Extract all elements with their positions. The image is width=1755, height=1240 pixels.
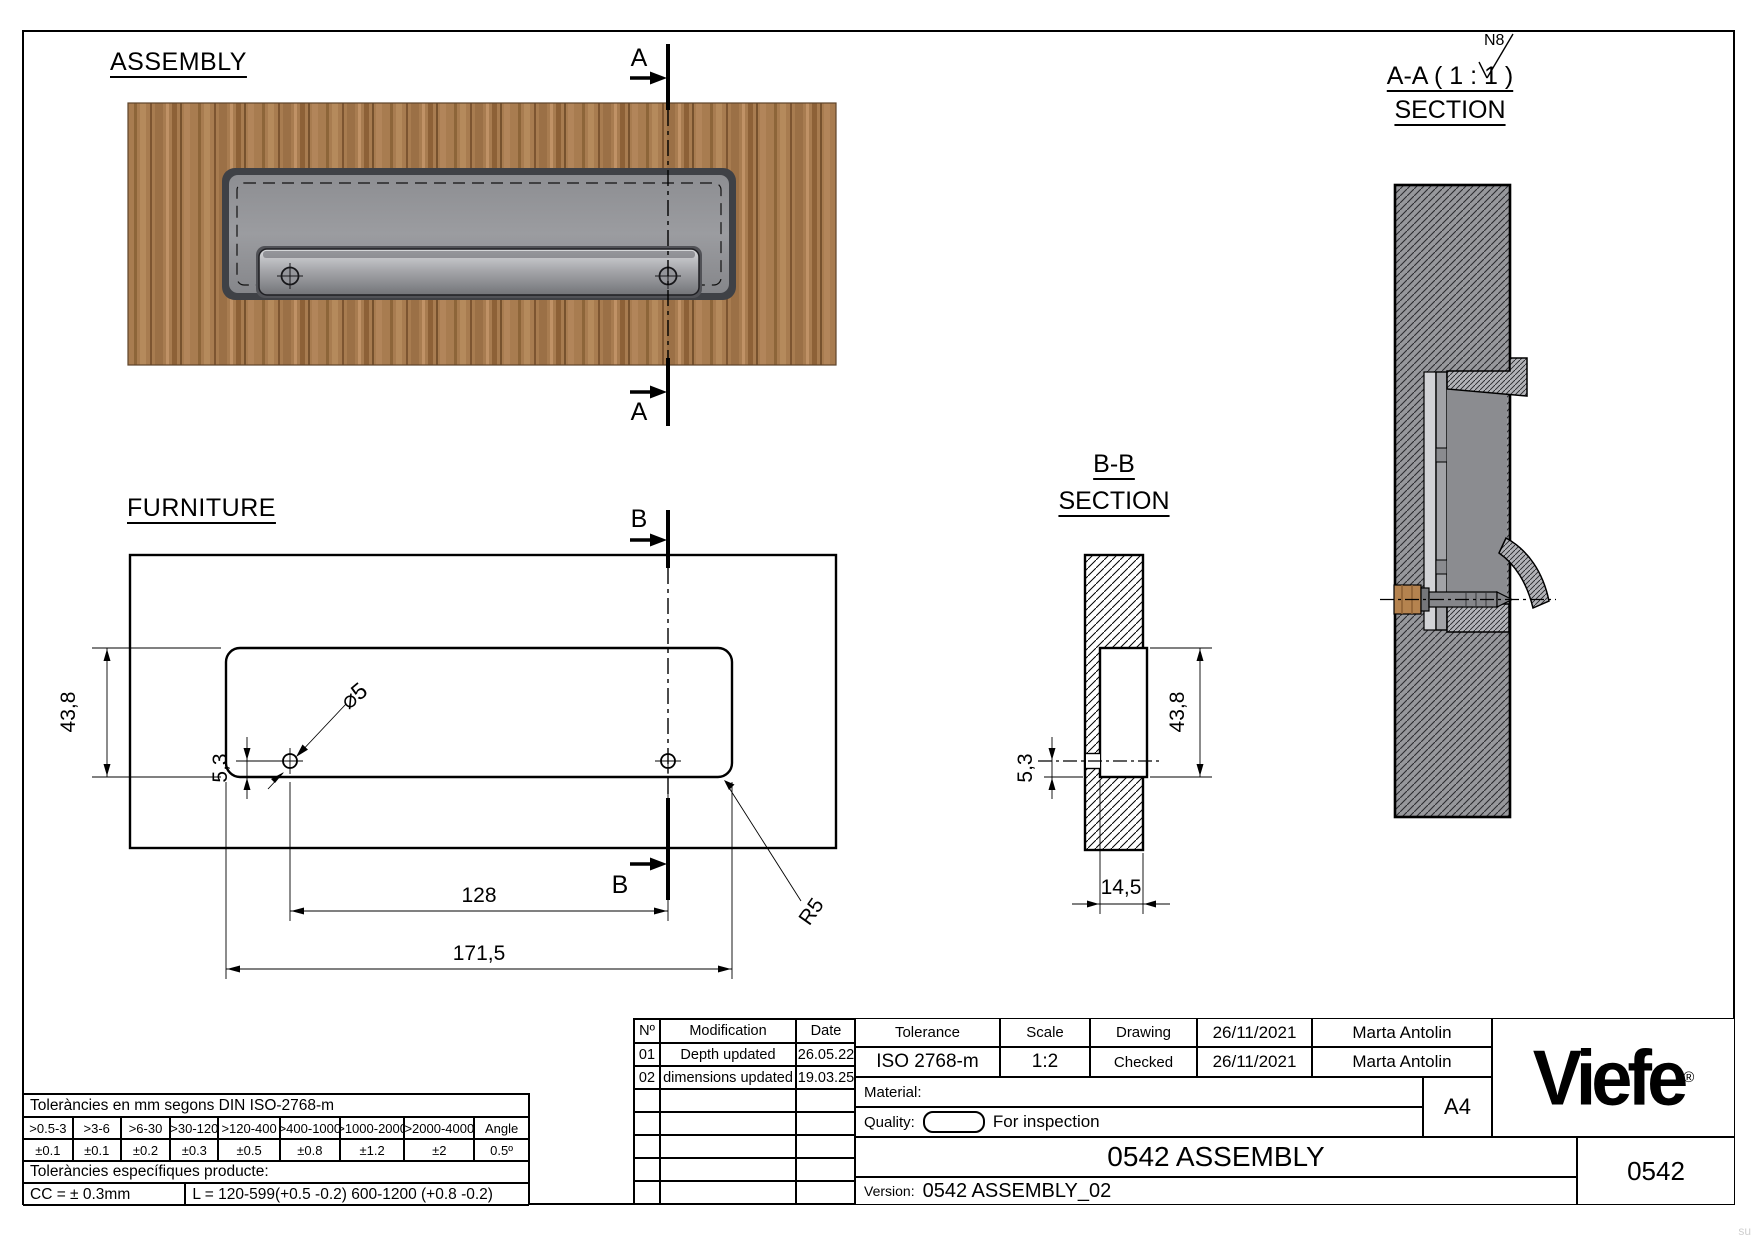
scale-value-cell: 1:2 [1000,1047,1090,1077]
mod-cell: 02 [634,1066,660,1089]
dim-section-offset: 5,3 [1014,753,1038,782]
quality-value: For inspection [993,1112,1100,1132]
tolerance-value: ±0.1 [23,1139,73,1161]
tolerance-value: ±0.3 [170,1139,218,1161]
assembly-view-drawing [128,44,836,426]
tolerance-value: ±0.2 [121,1139,171,1161]
section-aa-drawing [1380,185,1556,817]
checked-author-cell: Marta Antolin [1312,1047,1492,1077]
tolerance-range: >0.5-3 [23,1117,73,1139]
modification-table: Nº Modification Date 01 Depth updated 26… [633,1018,855,1205]
mod-cell [796,1158,856,1181]
section-marker-a-bottom: A [623,398,655,427]
tolerance-range: >400-1000 [280,1117,340,1139]
assembly-view-title: ASSEMBLY [110,48,247,77]
tolerance-value: ±0.1 [73,1139,121,1161]
mod-cell [660,1181,796,1204]
paper-size-cell: A4 [1423,1077,1492,1137]
section-aa-subtitle: SECTION [1340,96,1560,125]
drawing-date-cell: 26/11/2021 [1197,1018,1312,1047]
cc-tolerance-cell: CC = ± 0.3mm [23,1183,185,1206]
quality-label: Quality: [864,1114,915,1131]
mod-cell [796,1112,856,1135]
mod-cell [796,1135,856,1158]
mod-cell: 19.03.25 [796,1066,856,1089]
mod-col-header: Date [796,1019,856,1043]
tolerance-value-cell: ISO 2768-m [855,1047,1000,1077]
tolerance-table-title: Toleràncies en mm segons DIN ISO-2768-m [23,1094,529,1117]
general-tolerances-table: Toleràncies en mm segons DIN ISO-2768-m … [22,1093,530,1205]
mod-cell: 01 [634,1043,660,1066]
mod-cell: dimensions updated [660,1066,796,1089]
section-marker-a-top: A [623,44,655,73]
tolerance-value: ±0.8 [280,1139,340,1161]
viefe-logo: Viefe [1533,1033,1684,1122]
length-tolerance-cell: L = 120-599(+0.5 -0.2) 600-1200 (+0.8 -0… [185,1183,529,1206]
mod-cell [796,1181,856,1204]
checked-label-cell: Checked [1090,1047,1197,1077]
section-bb-title: B-B [1054,450,1174,479]
tolerance-range: >2000-4000 [404,1117,474,1139]
mod-cell: 26.05.22 [796,1043,856,1066]
logo-box: Viefe ® [1492,1018,1735,1137]
mod-cell [660,1135,796,1158]
dim-hole-spacing: 128 [461,884,496,908]
section-bb-drawing [1038,555,1212,914]
mod-cell [796,1089,856,1112]
version-row: Version: 0542 ASSEMBLY_02 [855,1177,1577,1205]
surface-finish-label: N8 [1484,32,1504,50]
mod-cell [634,1181,660,1204]
drawing-author-cell: Marta Antolin [1312,1018,1492,1047]
quality-stamp-icon [923,1111,985,1133]
specific-tolerance-title: Toleràncies específiques producte: [23,1161,529,1183]
furniture-view-drawing [92,510,836,979]
section-bb-subtitle: SECTION [1054,487,1174,516]
drawing-number-cell: 0542 [1577,1137,1735,1205]
mod-cell [634,1112,660,1135]
mod-cell: Depth updated [660,1043,796,1066]
registered-mark: ® [1683,1069,1694,1086]
mod-cell [634,1135,660,1158]
section-aa-title: A-A ( 1 : 1 ) [1340,62,1560,91]
tolerance-label-cell: Tolerance [855,1018,1000,1047]
drawing-sheet: ASSEMBLY FURNITURE A-A ( 1 : 1 ) SECTION… [0,0,1755,1240]
mod-col-header: Modification [660,1019,796,1043]
version-value: 0542 ASSEMBLY_02 [923,1180,1112,1203]
version-label: Version: [864,1183,915,1199]
tolerance-value: ±0.5 [218,1139,280,1161]
tolerance-range: >3-6 [73,1117,121,1139]
drawing-title-cell: 0542 ASSEMBLY [855,1137,1577,1177]
tolerance-range: >120-400 [218,1117,280,1139]
mod-cell [660,1158,796,1181]
tolerance-range: >30-120 [170,1117,218,1139]
checked-date-cell: 26/11/2021 [1197,1047,1312,1077]
mod-cell [634,1158,660,1181]
quality-row: Quality: For inspection [855,1107,1423,1137]
tolerance-value: ±2 [404,1139,474,1161]
drawing-label-cell: Drawing [1090,1018,1197,1047]
mod-col-header: Nº [634,1019,660,1043]
material-row: Material: [855,1077,1423,1107]
section-marker-b-top: B [623,505,655,534]
tolerance-range: Angle [474,1117,529,1139]
furniture-view-title: FURNITURE [127,494,276,523]
dim-section-depth: 14,5 [1101,876,1142,900]
dim-hole-offset: 5,3 [209,753,233,782]
scale-label-cell: Scale [1000,1018,1090,1047]
mod-cell [660,1112,796,1135]
dim-cutout-length: 171,5 [453,942,506,966]
mod-cell [660,1089,796,1112]
tolerance-value: 0.5º [474,1139,529,1161]
dim-section-height: 43,8 [1166,692,1190,733]
dim-cutout-height: 43,8 [57,692,81,733]
tolerance-range: >1000-2000 [340,1117,405,1139]
mod-cell [634,1089,660,1112]
section-marker-b-bottom: B [604,871,636,900]
tolerance-value: ±1.2 [340,1139,405,1161]
tolerance-range: >6-30 [121,1117,171,1139]
watermark: su [1738,1224,1751,1238]
